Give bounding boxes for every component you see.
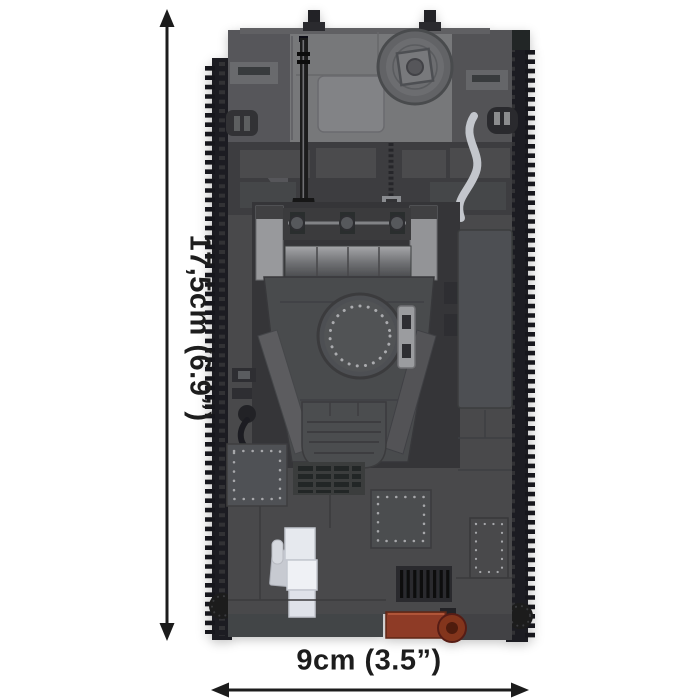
width-dimension-arrow [211, 683, 529, 698]
louver-vent [293, 462, 365, 495]
u-clip-left [226, 110, 258, 136]
top-clip-right [419, 10, 441, 31]
deck-door-panel [318, 76, 384, 132]
latch-left [230, 62, 278, 84]
rivet-panel-center [371, 490, 431, 548]
hatch-handle [398, 306, 415, 368]
red-tow-brick [386, 608, 466, 642]
tank-model [209, 10, 533, 642]
top-clip-left [303, 10, 325, 31]
turret [252, 202, 460, 468]
turret-rear-hatch [302, 402, 386, 468]
height-dimension-arrow [160, 9, 175, 641]
rivet-panel-left [227, 444, 287, 506]
rivet-panel-right [470, 518, 508, 578]
tank-top-view-illustration [0, 0, 700, 700]
fuel-hatch [378, 30, 452, 104]
engine-grille [396, 566, 452, 602]
round-clip-right [487, 107, 518, 134]
turret-hatch [318, 294, 402, 378]
latch-right [466, 70, 508, 90]
storage-panel [458, 230, 512, 408]
width-dimension-label: 9cm (3.5”) [296, 645, 441, 678]
height-dimension-label: 17,5cm (6.9”) [183, 234, 216, 421]
white-cylinder [272, 540, 283, 564]
product-image-canvas: 17,5cm (6.9”) 9cm (3.5”) [0, 0, 700, 700]
